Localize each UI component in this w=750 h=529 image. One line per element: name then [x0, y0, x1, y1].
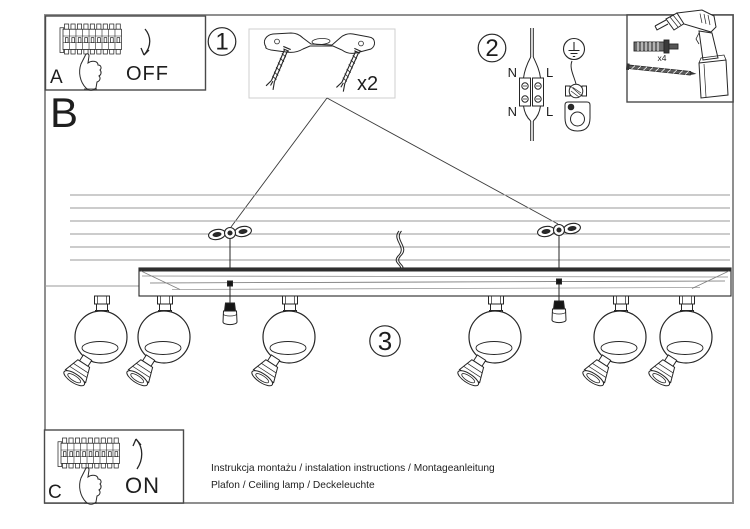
terminal-block-icon — [520, 28, 544, 141]
spotlight-head — [62, 296, 127, 389]
off-label: OFF — [126, 63, 169, 85]
on-label: ON — [125, 473, 160, 498]
footer-line2: Plafon / Ceiling lamp / Deckeleuchte — [211, 480, 375, 491]
power-cable-icon — [396, 231, 404, 269]
step-a-label: A — [50, 67, 63, 88]
spotlight-head — [125, 296, 190, 389]
instruction-diagram: A OFF B 1 x2 2 — [0, 0, 750, 529]
step-2-section: 2 N L N L — [478, 28, 590, 141]
bracket-drop-lines — [230, 236, 559, 269]
spotlight-head — [250, 296, 315, 389]
bracket-qty-label: x2 — [357, 73, 378, 95]
spotlight-head — [581, 296, 646, 389]
step-3-number: 3 — [378, 326, 392, 356]
step-c-label: C — [48, 482, 62, 503]
step-b-label: B — [50, 89, 78, 136]
step-c-box: C ON — [45, 430, 184, 504]
tools-box: x4 — [626, 10, 733, 102]
wire-n-top-label: N — [508, 65, 517, 80]
step-1-number: 1 — [215, 29, 228, 56]
wire-l-top-label: L — [546, 65, 553, 80]
earth-symbol-icon — [564, 39, 585, 60]
step-a-box: A OFF — [46, 16, 206, 90]
footer-line1: Instrukcja montażu / instalation instruc… — [211, 463, 495, 474]
wire-n-bottom-label: N — [508, 104, 517, 119]
ground-terminal-icon — [565, 61, 590, 131]
instruction-sheet: A OFF B 1 x2 2 — [0, 0, 750, 529]
spotlight-head — [647, 296, 712, 389]
step-1-section: 1 x2 — [208, 28, 558, 227]
anchor-qty-label: x4 — [658, 53, 667, 63]
spotlight-head — [456, 296, 521, 389]
step-2-number: 2 — [485, 35, 498, 62]
wire-l-bottom-label: L — [546, 104, 553, 119]
